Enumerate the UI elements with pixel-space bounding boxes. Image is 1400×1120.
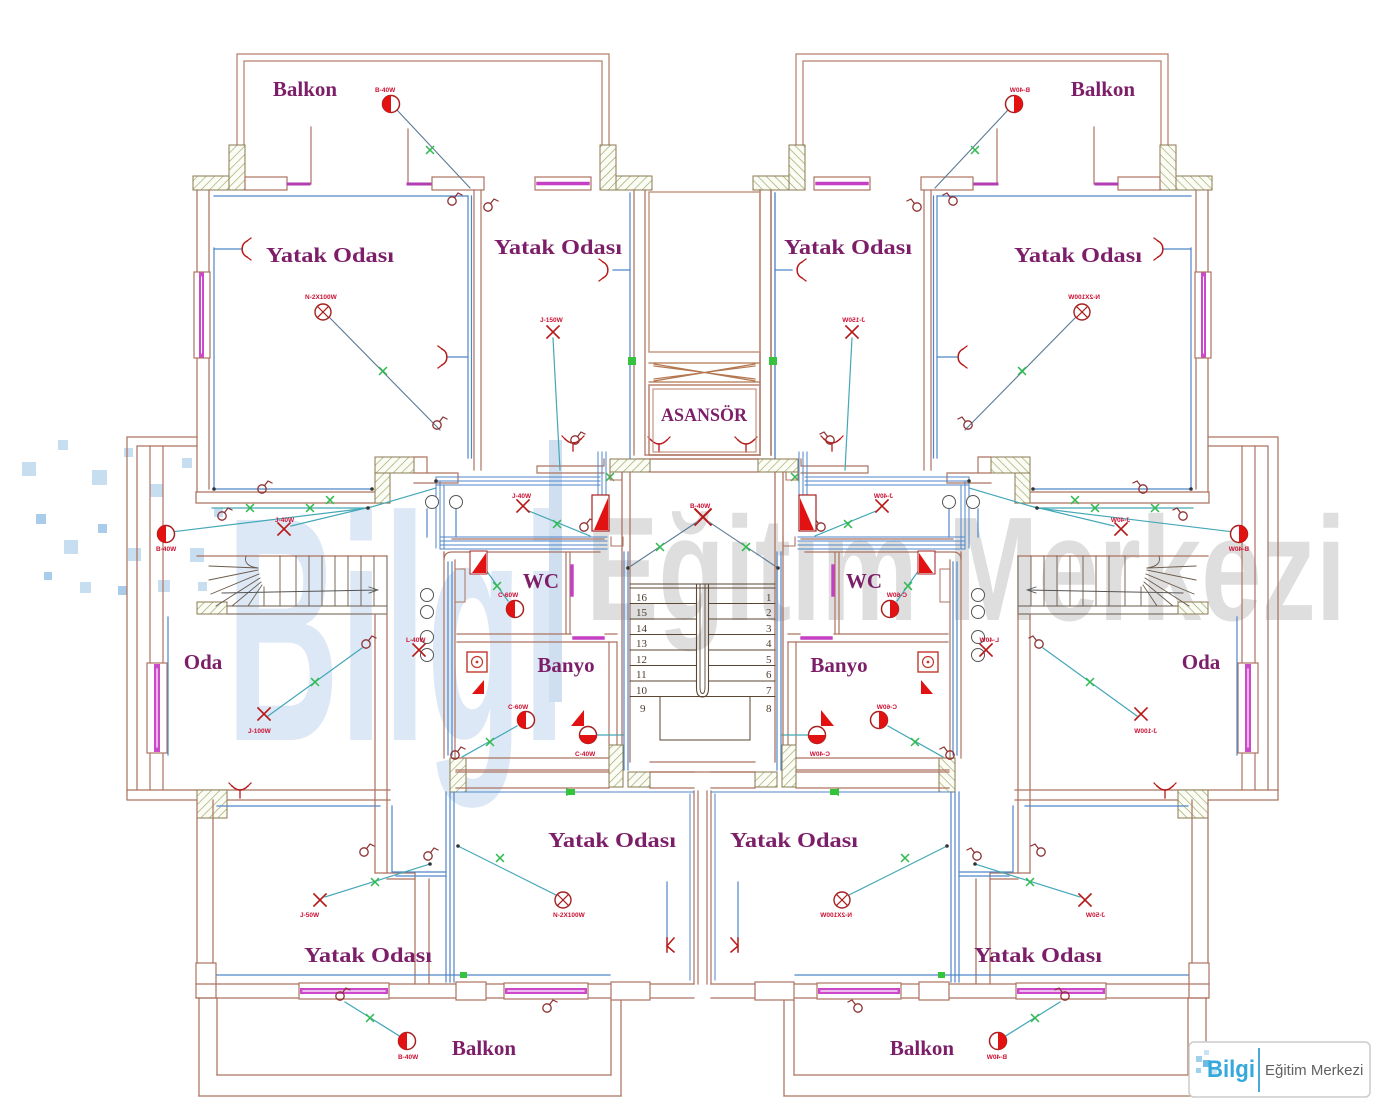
svg-text:J-50W: J-50W [300, 912, 320, 919]
svg-text:Yatak Odası: Yatak Odası [730, 828, 858, 852]
svg-text:C-60W: C-60W [508, 704, 529, 711]
svg-text:Balkon: Balkon [1071, 77, 1136, 101]
svg-text:Balkon: Balkon [273, 77, 338, 101]
svg-text:8: 8 [766, 703, 772, 715]
svg-text:Yatak Odası: Yatak Odası [266, 243, 394, 267]
svg-text:14: 14 [636, 623, 648, 635]
svg-text:2: 2 [766, 607, 772, 619]
svg-text:B-40W: B-40W [690, 503, 711, 510]
svg-text:15: 15 [636, 607, 648, 619]
svg-text:12: 12 [636, 654, 647, 666]
svg-text:13: 13 [636, 638, 648, 650]
svg-text:11: 11 [636, 669, 647, 681]
svg-text:C-40W: C-40W [575, 751, 596, 758]
svg-text:C-60W: C-60W [498, 592, 519, 599]
svg-text:ASANSÖR: ASANSÖR [661, 405, 747, 426]
svg-text:N-2X100W: N-2X100W [305, 294, 338, 301]
svg-text:WC: WC [523, 569, 559, 593]
svg-text:5: 5 [766, 654, 772, 666]
svg-text:N-2X100W: N-2X100W [553, 912, 586, 919]
svg-text:3: 3 [766, 623, 772, 635]
svg-text:Yatak Odası: Yatak Odası [974, 943, 1102, 967]
svg-text:J-100W: J-100W [248, 728, 272, 735]
svg-text:Bilgi: Bilgi [1207, 1056, 1255, 1083]
svg-text:Yatak Odası: Yatak Odası [494, 235, 622, 259]
svg-text:WC: WC [846, 569, 882, 593]
svg-text:B-40W: B-40W [156, 546, 177, 553]
svg-text:16: 16 [636, 592, 648, 604]
svg-text:Yatak Odası: Yatak Odası [1014, 243, 1142, 267]
svg-text:B-40W: B-40W [375, 87, 396, 94]
svg-text:Bilgi: Bilgi [226, 450, 566, 810]
svg-text:B-40W: B-40W [398, 1054, 419, 1061]
svg-text:Banyo: Banyo [810, 653, 867, 677]
svg-text:6: 6 [766, 669, 772, 681]
svg-text:Banyo: Banyo [537, 653, 594, 677]
svg-text:Balkon: Balkon [890, 1036, 955, 1060]
svg-text:9: 9 [640, 703, 646, 715]
svg-text:Balkon: Balkon [452, 1036, 517, 1060]
svg-text:Yatak Odası: Yatak Odası [548, 828, 676, 852]
svg-text:Eğitim Merkezi: Eğitim Merkezi [1265, 1062, 1363, 1079]
svg-text:1: 1 [766, 592, 772, 604]
svg-text:4: 4 [766, 638, 772, 650]
svg-text:J-150W: J-150W [540, 317, 564, 324]
svg-text:7: 7 [766, 685, 772, 697]
svg-text:Oda: Oda [184, 650, 223, 674]
svg-text:L-40W: L-40W [406, 637, 426, 644]
svg-text:Yatak Odası: Yatak Odası [784, 235, 912, 259]
svg-text:10: 10 [636, 685, 648, 697]
svg-text:Yatak Odası: Yatak Odası [304, 943, 432, 967]
svg-text:J-40W: J-40W [512, 493, 532, 500]
svg-text:J-40W: J-40W [275, 517, 295, 524]
svg-text:Oda: Oda [1182, 650, 1221, 674]
